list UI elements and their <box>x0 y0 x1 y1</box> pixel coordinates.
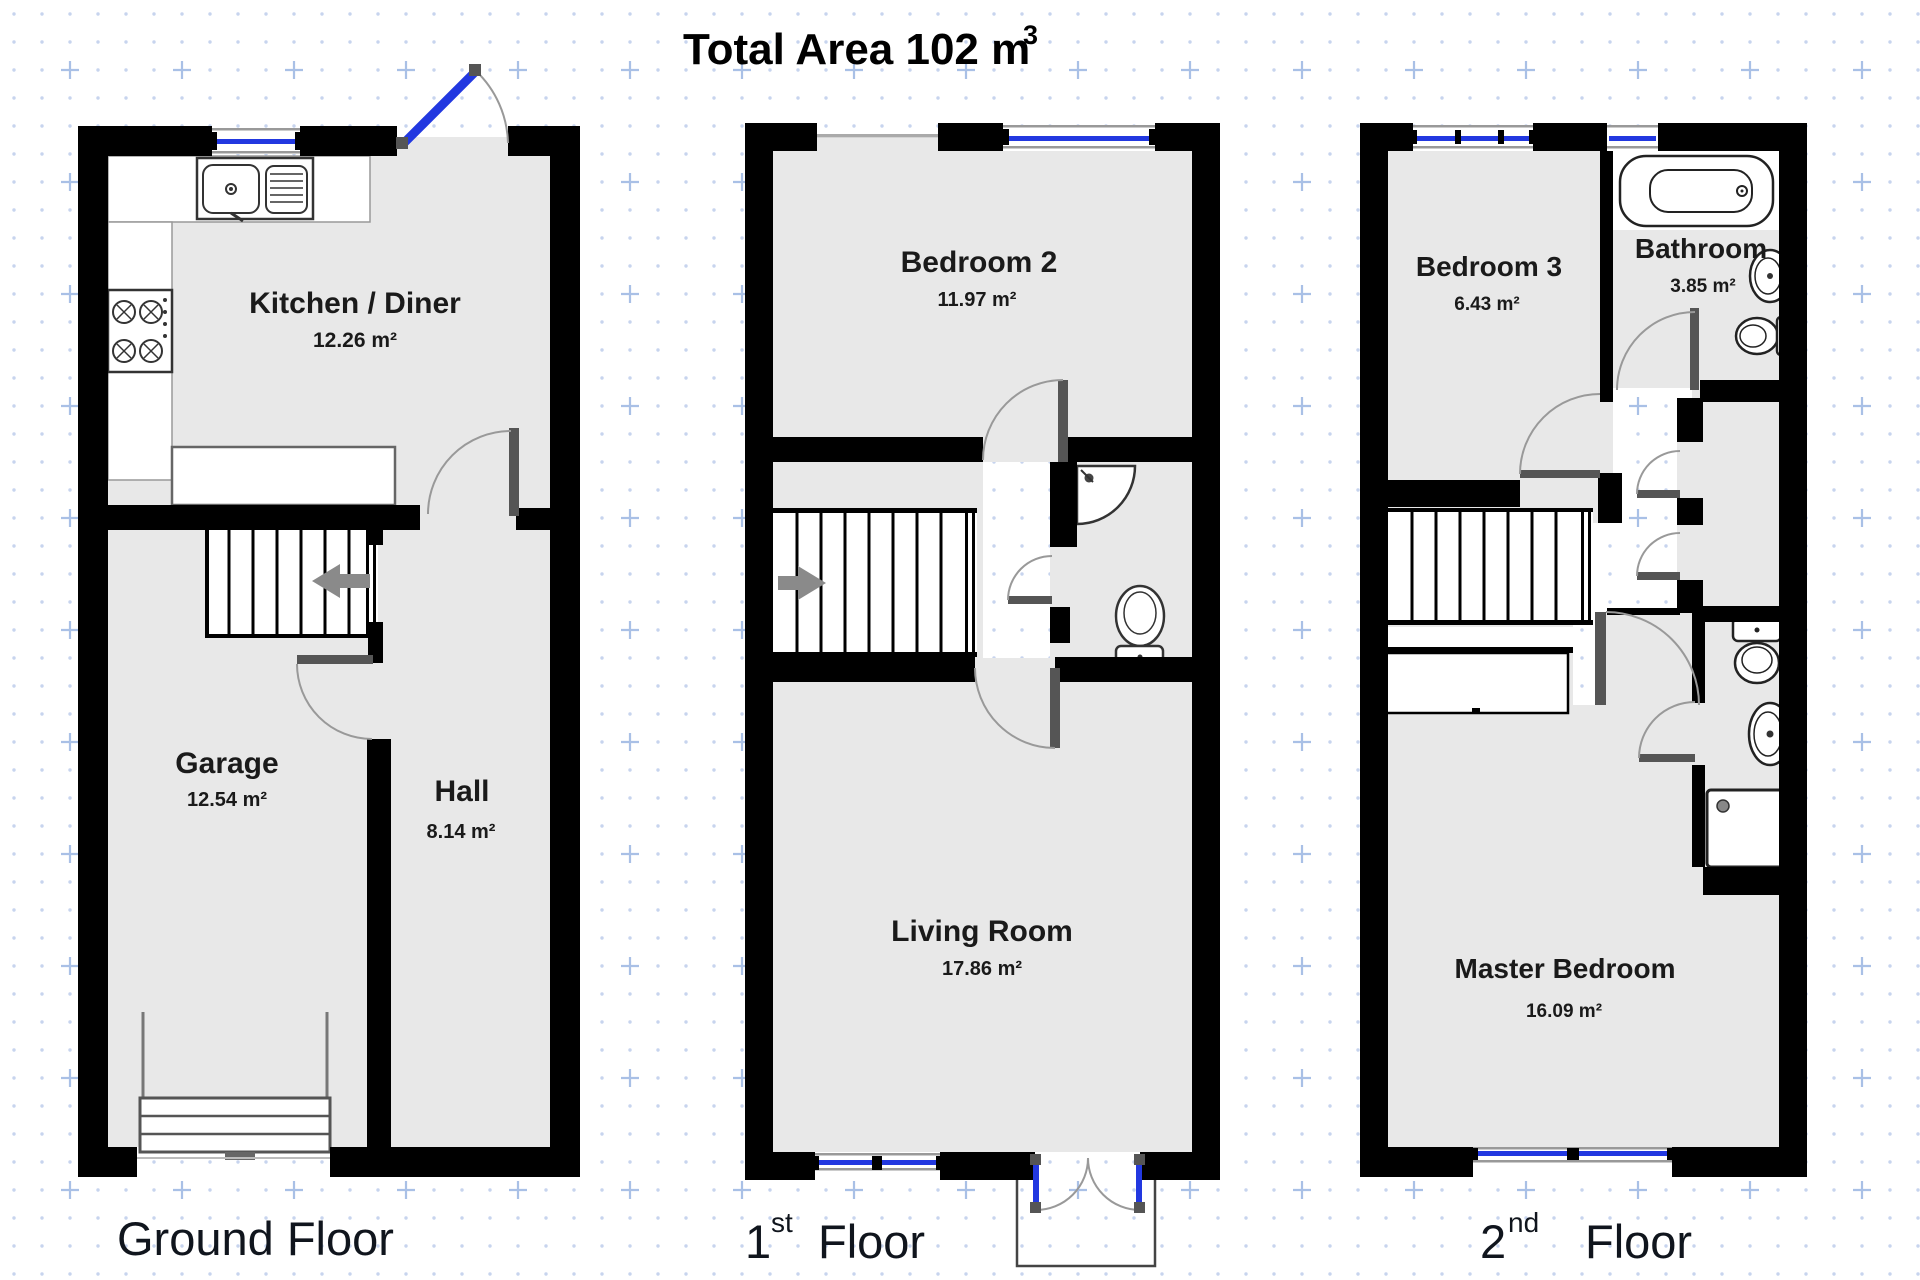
room-label-bedroom3: Bedroom 3 <box>1416 251 1562 282</box>
floorplan-canvas: Total Area 102 m 3 <box>0 0 1920 1280</box>
ground-floor-plan: Kitchen / Diner 12.26 m² Garage 12.54 m²… <box>78 64 580 1265</box>
wall <box>1600 151 1613 402</box>
window <box>1473 1147 1672 1177</box>
svg-text:1: 1 <box>745 1215 771 1268</box>
door-leaf <box>1520 470 1600 478</box>
wall <box>1050 607 1070 643</box>
room-area-bedroom2: 11.97 m² <box>938 289 1017 311</box>
room-label-garage: Garage <box>175 747 278 780</box>
room-label-hall: Hall <box>434 775 489 808</box>
wall <box>367 739 391 1147</box>
door-leaf <box>1008 596 1052 604</box>
svg-text:Floor: Floor <box>818 1215 925 1268</box>
window <box>1003 125 1155 149</box>
door-leaf <box>1058 380 1068 462</box>
wall <box>1360 1147 1473 1177</box>
room-area-garage: 12.54 m² <box>187 789 267 811</box>
toilet <box>1733 618 1781 683</box>
room-area-living: 17.86 m² <box>942 958 1022 980</box>
svg-text:2: 2 <box>1480 1215 1506 1268</box>
wall <box>1672 1147 1807 1177</box>
wall <box>1703 867 1779 895</box>
room-area-hall: 8.14 m² <box>427 821 496 843</box>
staircase <box>1388 508 1593 625</box>
wall <box>368 523 383 545</box>
wall <box>745 1152 815 1180</box>
door-leaf <box>1050 668 1060 748</box>
svg-text:Floor: Floor <box>1585 1215 1692 1268</box>
door-leaf <box>509 428 519 516</box>
room-label-bedroom2: Bedroom 2 <box>901 246 1058 279</box>
door-leaf <box>1595 612 1606 705</box>
svg-text:st: st <box>771 1207 793 1238</box>
staircase <box>773 508 977 657</box>
ground-floor-caption: Ground Floor <box>117 1212 394 1265</box>
door-leaf <box>1639 754 1695 762</box>
wall <box>1598 473 1622 523</box>
floorplan-drawing: Total Area 102 m 3 <box>0 0 1920 1280</box>
kitchen-sink <box>197 158 313 221</box>
room-label-living: Living Room <box>891 915 1073 948</box>
stove <box>108 290 172 372</box>
door-leaf <box>1637 572 1680 580</box>
door-leaf <box>1637 490 1680 498</box>
second-floor-plan: Bedroom 3 6.43 m² Bathroom 3.85 m² Maste… <box>1360 123 1807 1268</box>
room-label-kitchen: Kitchen / Diner <box>249 287 461 320</box>
total-area-title: Total Area 102 m <box>683 25 1030 74</box>
wall <box>1192 123 1220 1180</box>
wall <box>1677 398 1703 442</box>
wall <box>1050 462 1077 547</box>
first-floor-plan: Bedroom 2 11.97 m² Living Room 17.86 m² … <box>745 123 1220 1268</box>
room-area-kitchen: 12.26 m² <box>313 329 397 352</box>
room-area-bedroom3: 6.43 m² <box>1454 294 1519 315</box>
door-leaf <box>1690 308 1699 390</box>
svg-text:nd: nd <box>1508 1207 1539 1238</box>
wall <box>1360 480 1520 507</box>
landing-floor <box>983 462 1050 658</box>
wall <box>745 657 975 682</box>
wall <box>940 1152 1035 1180</box>
room-area-bathroom: 3.85 m² <box>1670 276 1735 297</box>
wall <box>1692 606 1792 622</box>
wall <box>1055 657 1192 682</box>
wall <box>78 126 108 1177</box>
total-area-title-superscript: 3 <box>1023 20 1038 50</box>
wall <box>300 126 397 156</box>
party-wall-gap <box>817 138 938 151</box>
window <box>1607 125 1658 149</box>
wall <box>330 1147 580 1177</box>
window <box>1413 125 1533 149</box>
wall <box>1607 608 1680 615</box>
wall <box>1140 1152 1220 1180</box>
page-title: Total Area 102 m 3 <box>683 20 1038 74</box>
wall <box>1378 647 1573 653</box>
staircase <box>205 523 378 638</box>
shower-tray <box>1707 790 1790 867</box>
toilet <box>1116 586 1164 668</box>
wall <box>745 123 773 1180</box>
wall <box>1677 498 1703 525</box>
room-label-bathroom: Bathroom <box>1635 233 1767 264</box>
wall <box>1692 765 1705 867</box>
room-area-master: 16.09 m² <box>1526 1001 1602 1022</box>
wall <box>550 126 580 1177</box>
kitchen-island-unit <box>172 447 395 505</box>
door-leaf <box>297 655 373 664</box>
wall <box>78 1147 137 1177</box>
room-label-master: Master Bedroom <box>1455 953 1676 984</box>
wall <box>938 123 1003 151</box>
wall <box>773 437 983 462</box>
entrance-threshold <box>397 137 508 156</box>
wall <box>1533 123 1607 151</box>
window <box>815 1152 940 1180</box>
wall <box>1779 123 1807 1177</box>
wall <box>516 508 550 530</box>
wall <box>1068 437 1192 462</box>
wall <box>1700 380 1807 402</box>
wardrobe <box>1383 653 1568 713</box>
window <box>212 128 300 154</box>
